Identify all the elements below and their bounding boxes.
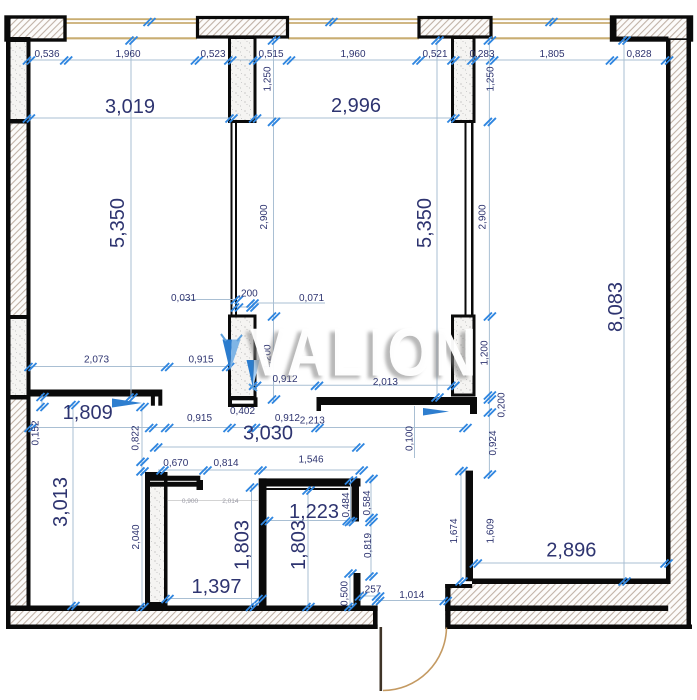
svg-text:3,013: 3,013	[50, 477, 72, 527]
svg-text:1,250: 1,250	[262, 66, 273, 91]
svg-text:2,896: 2,896	[546, 540, 596, 562]
svg-text:0,822: 0,822	[131, 425, 142, 450]
svg-text:1,223: 1,223	[289, 501, 339, 523]
svg-text:0,500: 0,500	[340, 581, 351, 606]
svg-text:2,040: 2,040	[131, 524, 142, 549]
svg-text:0,152: 0,152	[31, 420, 42, 445]
svg-text:1,960: 1,960	[340, 49, 365, 60]
svg-text:1,803: 1,803	[232, 520, 254, 570]
svg-text:0,484: 0,484	[341, 492, 352, 517]
svg-text:0,521: 0,521	[422, 49, 447, 60]
svg-text:2,073: 2,073	[84, 355, 109, 366]
svg-text:,257: ,257	[362, 584, 382, 595]
svg-text:3,019: 3,019	[105, 96, 155, 118]
svg-text:3,030: 3,030	[243, 423, 293, 445]
svg-text:2,213: 2,213	[300, 416, 325, 427]
svg-text:1,546: 1,546	[298, 454, 323, 465]
svg-text:0,515: 0,515	[258, 49, 283, 60]
svg-text:2,900: 2,900	[478, 204, 489, 229]
svg-text:0,900: 0,900	[182, 498, 199, 505]
svg-text:0,584: 0,584	[362, 490, 373, 515]
svg-text:0,819: 0,819	[363, 533, 374, 558]
svg-text:0,200: 0,200	[497, 392, 508, 417]
svg-text:1,014: 1,014	[399, 590, 424, 601]
svg-text:5,350: 5,350	[107, 198, 129, 248]
svg-text:1,960: 1,960	[115, 49, 140, 60]
svg-text:VALION: VALION	[250, 315, 479, 390]
svg-text:0,100: 0,100	[405, 426, 416, 451]
svg-text:0,915: 0,915	[187, 413, 212, 424]
svg-text:0,670: 0,670	[163, 458, 188, 469]
svg-text:0,828: 0,828	[626, 49, 651, 60]
svg-text:2,900: 2,900	[259, 204, 270, 229]
svg-text:1,397: 1,397	[191, 576, 241, 598]
svg-text:0,031: 0,031	[171, 293, 196, 304]
svg-text:0,915: 0,915	[188, 355, 213, 366]
svg-text:1,609: 1,609	[486, 518, 497, 543]
svg-text:1,674: 1,674	[449, 518, 460, 543]
svg-text:2,996: 2,996	[331, 95, 381, 117]
svg-text:1,803: 1,803	[288, 520, 310, 570]
svg-text:0,536: 0,536	[34, 49, 59, 60]
svg-text:0,402: 0,402	[230, 406, 255, 417]
svg-text:0,071: 0,071	[299, 293, 324, 304]
svg-text:0,523: 0,523	[200, 49, 225, 60]
svg-text:1,809: 1,809	[63, 402, 113, 424]
svg-text:1,805: 1,805	[539, 49, 564, 60]
svg-text:8,083: 8,083	[605, 282, 627, 332]
svg-text:5,350: 5,350	[414, 198, 436, 248]
svg-text:0,283: 0,283	[469, 49, 494, 60]
svg-text:0,924: 0,924	[488, 430, 499, 455]
svg-text:1,200: 1,200	[480, 340, 491, 365]
svg-text:1,250: 1,250	[486, 66, 497, 91]
svg-text:2,014: 2,014	[222, 498, 239, 505]
svg-text:0,814: 0,814	[213, 458, 238, 469]
svg-text:,200: ,200	[238, 289, 258, 300]
